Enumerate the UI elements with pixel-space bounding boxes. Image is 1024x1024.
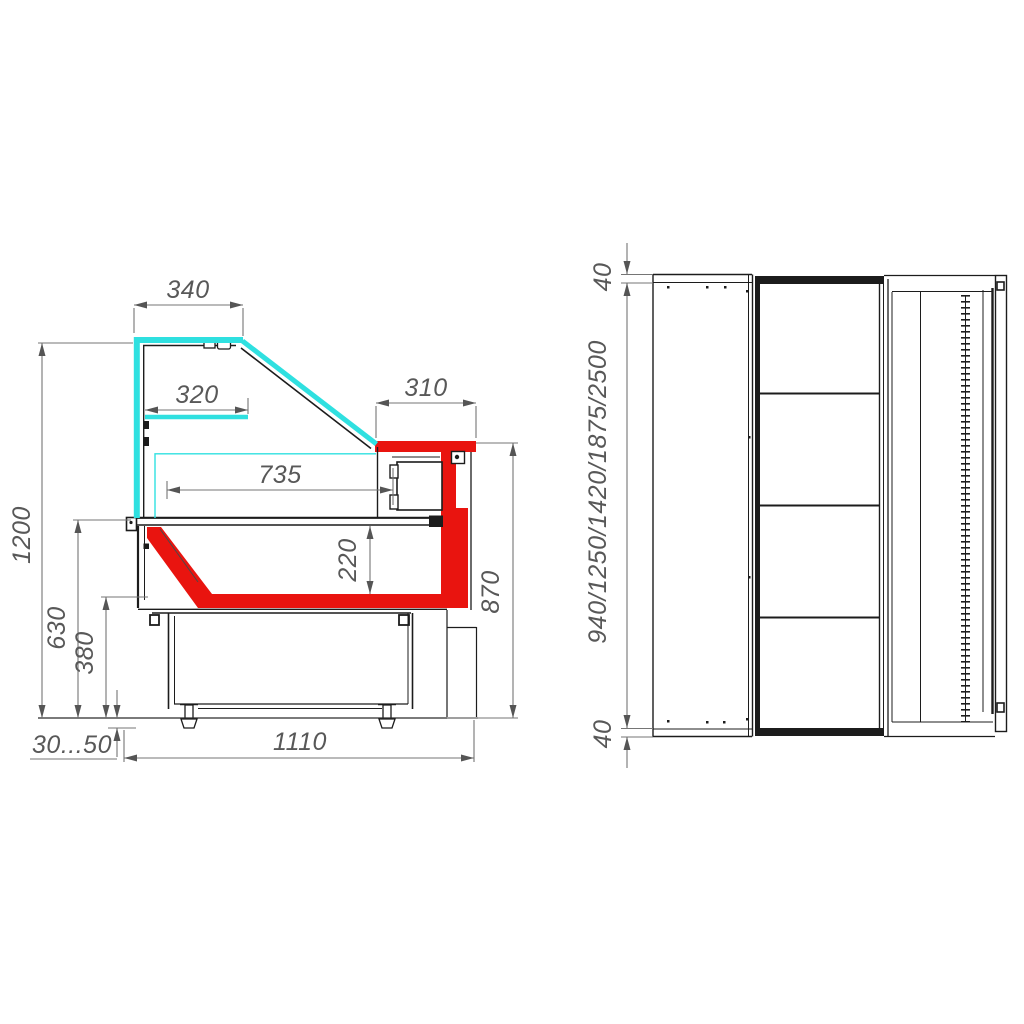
glass-panels [134, 337, 377, 518]
dim-40-bottom: 40 [589, 720, 627, 768]
dim-label-320: 320 [175, 381, 218, 409]
shelf-bracket-lower [144, 438, 149, 446]
dim-735: 735 [167, 461, 393, 505]
dim-label-630: 630 [43, 606, 71, 649]
technical-drawing-page: 340 320 310 735 220 [0, 0, 1024, 1024]
sloped-frame-line [241, 348, 371, 449]
foot-pad-left [181, 719, 197, 728]
dim-label-30-50: 30...50 [32, 731, 112, 759]
screw-dot [455, 455, 459, 459]
deck-rear-bracket [430, 516, 443, 527]
dim-label-1200: 1200 [8, 506, 36, 564]
dim-30-50: 30...50 [30, 690, 136, 759]
end-cap-notch-top [997, 282, 1004, 290]
dim-340: 340 [134, 276, 243, 336]
dim-lengths: 940/1250/1420/1875/2500 [584, 283, 627, 728]
dim-label-870: 870 [477, 570, 505, 613]
dim-220: 220 [334, 526, 370, 594]
plan-view: 40 940/1250/1420/1875/2500 40 [584, 243, 1007, 768]
bracket-screw [129, 521, 132, 524]
dim-label-40-bottom: 40 [589, 720, 617, 749]
sloped-glass [243, 341, 377, 444]
plan-body [653, 274, 1007, 737]
dim-40-top: 40 [589, 243, 627, 291]
foot-stem-right [383, 705, 391, 719]
dim-320: 320 [145, 381, 248, 414]
dim-630: 630 [43, 520, 131, 718]
shelf-bracket-upper [144, 422, 149, 429]
dim-380: 380 [71, 597, 148, 718]
dim-label-735: 735 [258, 461, 301, 489]
base-bracket-left [150, 615, 159, 625]
dim-label-1110: 1110 [273, 728, 327, 756]
base-cabinet [150, 613, 413, 709]
foot-stem-left [185, 705, 193, 719]
dim-310: 310 [376, 374, 476, 438]
compartment-box [397, 462, 442, 510]
foot-pad-right [379, 719, 395, 728]
compartment-tab-lower [390, 495, 398, 509]
mid-bottom-band [755, 728, 884, 736]
dim-1110: 1110 [124, 720, 474, 762]
side-section-view: 340 320 310 735 220 [8, 276, 518, 762]
compartment-tab-upper [390, 465, 398, 478]
mid-left-frame [755, 276, 760, 736]
dim-label-lengths: 940/1250/1420/1875/2500 [584, 340, 612, 643]
dim-label-310: 310 [404, 374, 447, 402]
dim-label-220: 220 [334, 538, 362, 582]
end-cap-notch-bottom [997, 703, 1004, 712]
mid-top-band [755, 276, 884, 284]
panel-clip [144, 544, 149, 549]
dim-label-40-top: 40 [589, 263, 617, 292]
end-cap [996, 276, 1007, 732]
plan-view-dimensions: 40 940/1250/1420/1875/2500 40 [584, 243, 653, 768]
dim-label-340: 340 [166, 276, 209, 304]
dim-label-380: 380 [71, 631, 99, 674]
drawing-svg: 340 320 310 735 220 [0, 0, 1024, 1024]
rivet-dots [667, 286, 751, 724]
